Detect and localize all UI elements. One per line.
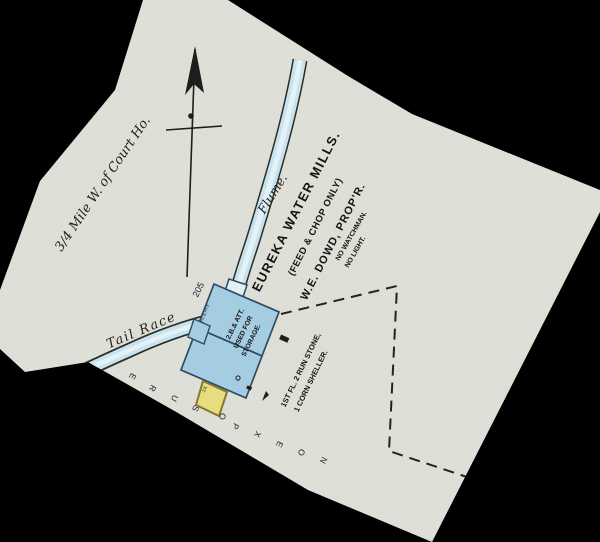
sanborn-map-scan: 3/4 Mile W. of Court Ho. Flume. Tail Rac… bbox=[0, 0, 600, 542]
north-arrow-dot bbox=[188, 113, 194, 119]
map-canvas: 3/4 Mile W. of Court Ho. Flume. Tail Rac… bbox=[0, 0, 600, 542]
